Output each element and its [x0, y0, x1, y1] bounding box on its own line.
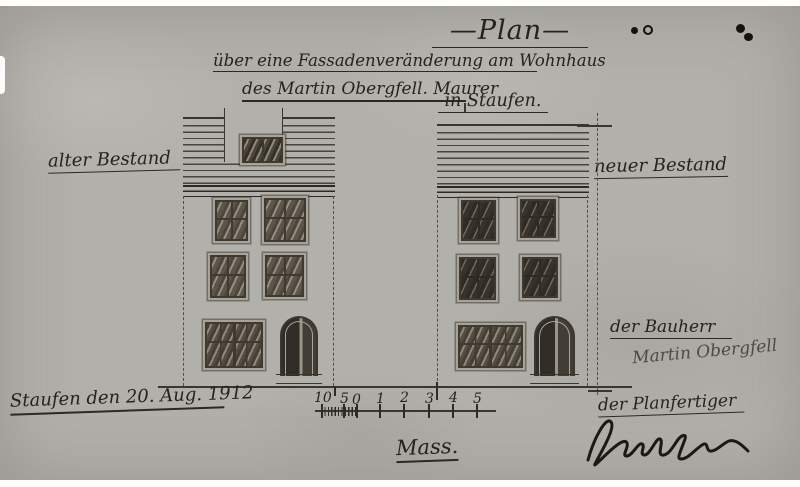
scale-tick	[356, 404, 358, 418]
scale-tick	[428, 404, 430, 418]
scale-minor-ticks	[321, 407, 357, 416]
window-ground-wide	[458, 325, 523, 368]
subtitle-line-2: des Martin Obergfell. Maurer	[242, 80, 466, 102]
scale-tick	[343, 404, 345, 418]
scale-tick	[379, 404, 381, 418]
scale-tick	[403, 404, 405, 418]
subtitle-line-1: über eine Fassadenveränderung am Wohnhau…	[213, 52, 537, 72]
window-mid-right	[522, 257, 558, 298]
dimension-line	[597, 113, 598, 395]
stray-tick	[436, 382, 438, 400]
arched-door	[534, 316, 575, 376]
door-steps	[276, 374, 322, 384]
window-upper-right	[520, 199, 556, 238]
ink-dot-icon	[744, 33, 753, 41]
ink-dot-icon	[631, 27, 638, 34]
window-upper-left	[461, 200, 496, 241]
window-mid-right	[265, 255, 304, 297]
ink-ring-icon	[643, 25, 653, 35]
window-mid-left	[210, 255, 246, 298]
dormer-window	[242, 137, 283, 163]
page-title: —Plan—	[432, 16, 588, 48]
building-old-facade	[183, 108, 335, 386]
scale-tick	[452, 404, 454, 418]
stray-tick	[334, 387, 336, 396]
scale-tick	[321, 404, 323, 418]
window-ground-wide	[205, 322, 263, 368]
door-steps	[530, 374, 579, 384]
location-text: in Staufen.	[438, 92, 548, 113]
window-mid-left	[459, 257, 496, 300]
window-upper-left	[215, 200, 248, 241]
arched-door	[280, 316, 318, 376]
window-upper-right	[264, 198, 306, 242]
roof-top-line	[437, 124, 589, 126]
label-old-state: alter Bestand	[48, 148, 181, 173]
ink-dot-icon	[736, 24, 745, 33]
building-new-facade	[437, 124, 589, 386]
label-new-state: neuer Bestand	[594, 155, 728, 179]
dimension-tick-bottom	[588, 390, 612, 392]
scan-edge-notch	[0, 56, 5, 94]
roof-hatching	[437, 127, 589, 186]
scale-caption: Mass.	[396, 435, 459, 463]
scale-tick	[476, 404, 478, 418]
scale-num-10: 10	[314, 391, 332, 406]
scanned-plan-document: —Plan— über eine Fassadenveränderung am …	[0, 0, 800, 487]
dimension-tick-top	[577, 125, 612, 127]
client-label: der Bauherr	[610, 318, 732, 339]
draftsman-signature-icon	[578, 408, 768, 470]
